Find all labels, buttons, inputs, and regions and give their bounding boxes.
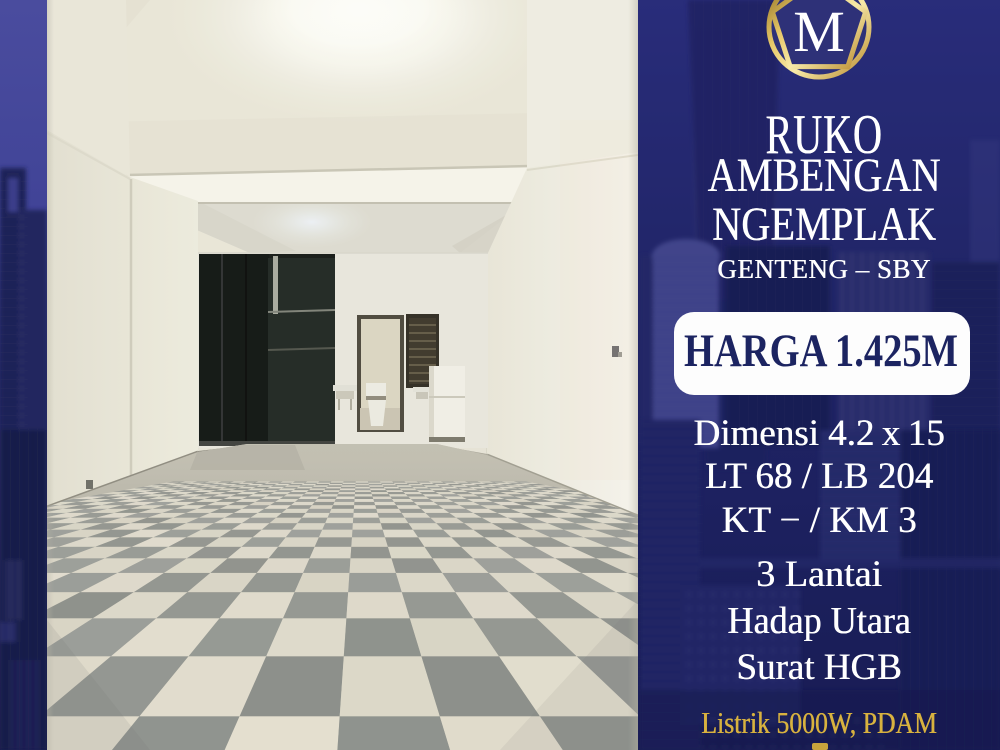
svg-text:M: M <box>793 0 845 64</box>
